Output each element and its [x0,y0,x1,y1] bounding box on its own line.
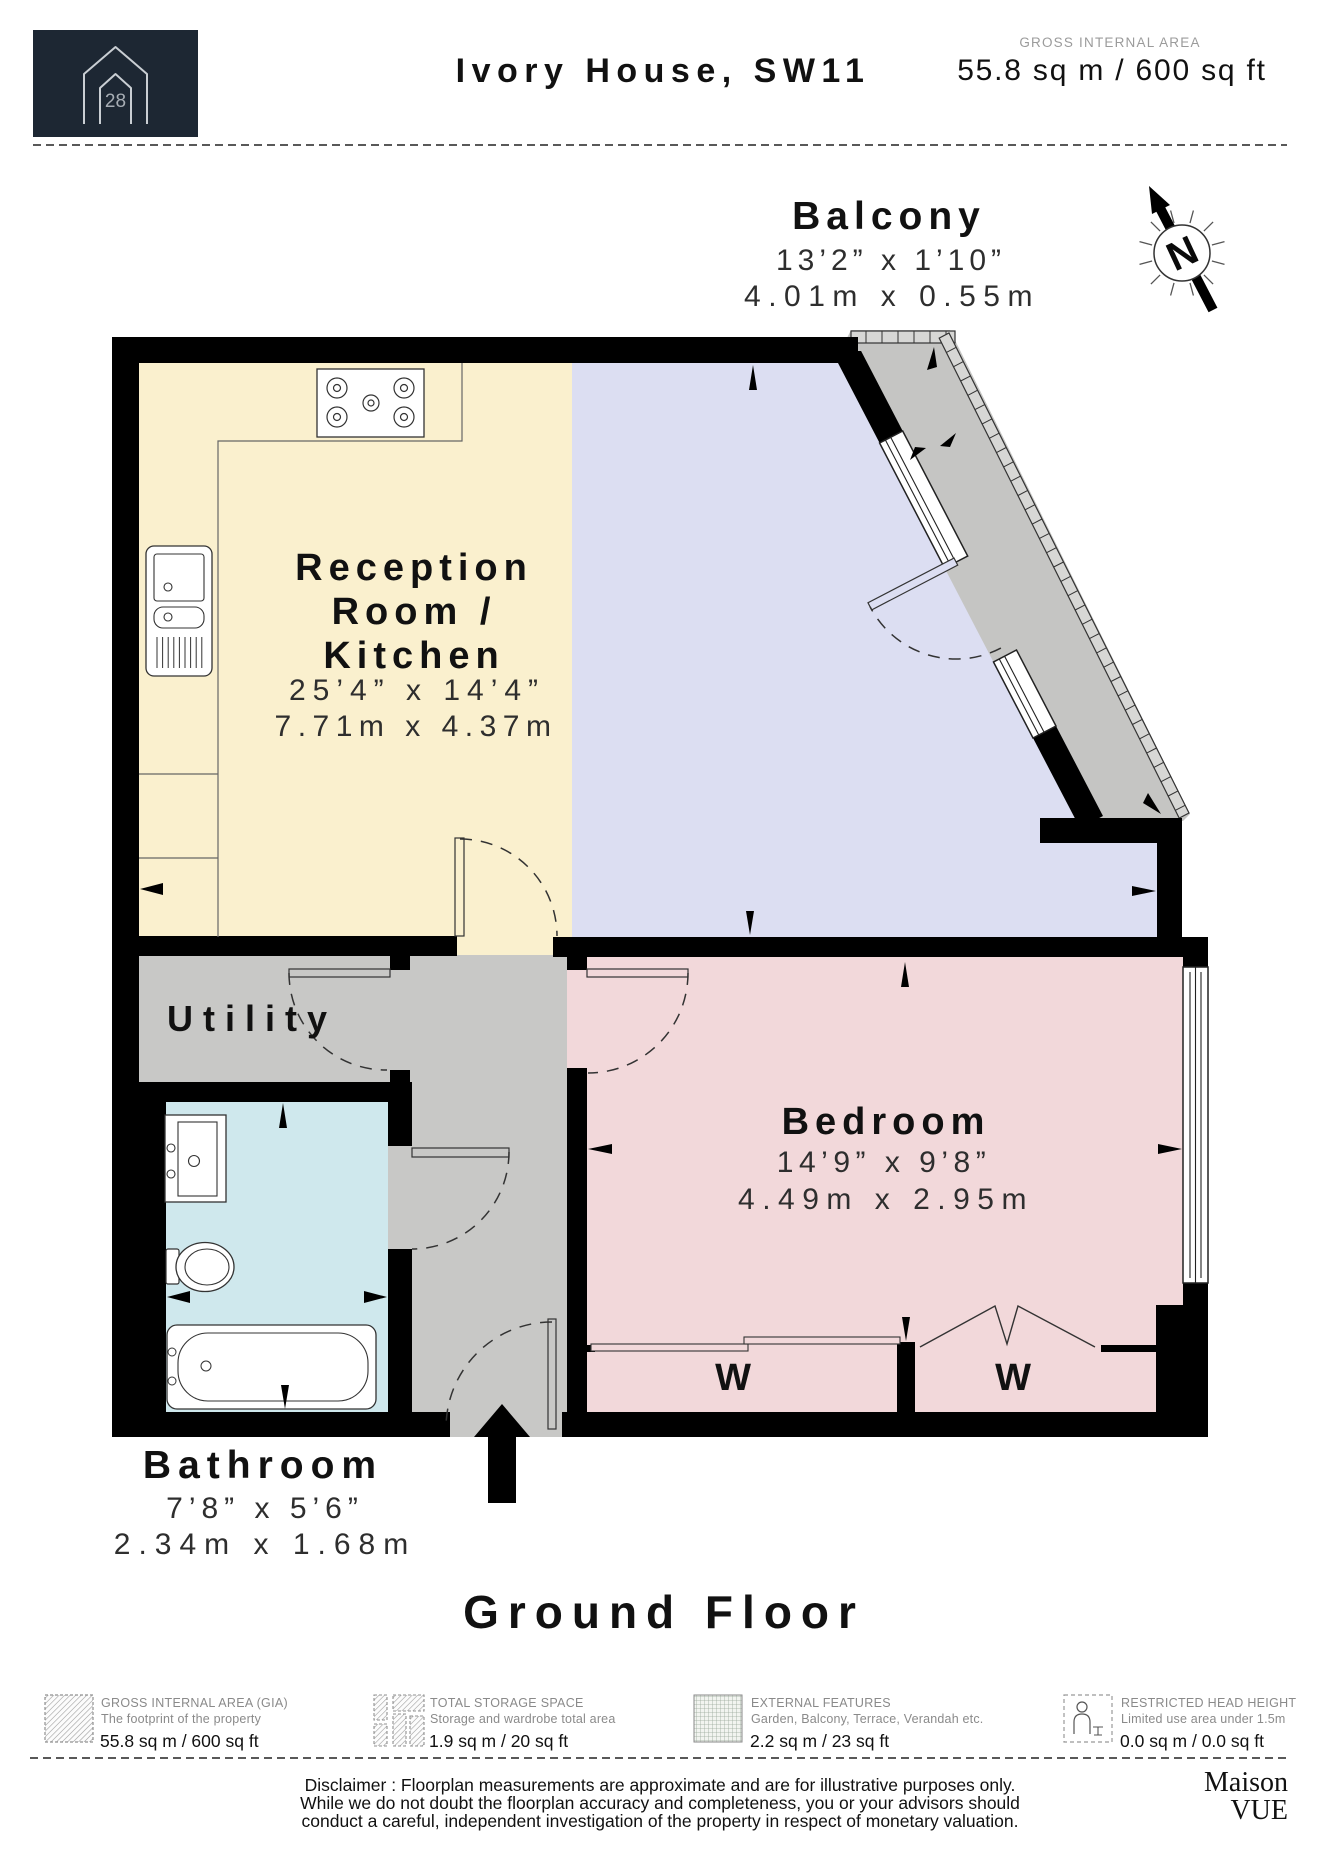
svg-text:Kitchen: Kitchen [323,635,504,677]
svg-text:Maison: Maison [1204,1767,1288,1798]
svg-text:The footprint of the property: The footprint of the property [101,1712,262,1726]
svg-text:conduct a careful, independent: conduct a careful, independent investiga… [302,1811,1019,1831]
svg-text:EXTERNAL FEATURES: EXTERNAL FEATURES [751,1696,891,1710]
svg-text:Storage and wardrobe total are: Storage and wardrobe total area [430,1712,616,1726]
svg-text:Ivory House, SW11: Ivory House, SW11 [456,52,871,90]
svg-text:Bedroom: Bedroom [782,1101,991,1143]
svg-text:W: W [995,1357,1031,1399]
svg-text:7.71m x 4.37m: 7.71m x 4.37m [275,710,558,743]
svg-text:While we do not doubt the floo: While we do not doubt the floorplan accu… [300,1793,1020,1813]
svg-text:GROSS INTERNAL AREA: GROSS INTERNAL AREA [1019,35,1200,50]
svg-text:14’9” x 9’8”: 14’9” x 9’8” [777,1146,991,1179]
svg-text:Disclaimer : Floorplan measure: Disclaimer : Floorplan measurements are … [305,1775,1016,1795]
svg-text:55.8 sq m / 600 sq ft: 55.8 sq m / 600 sq ft [957,54,1267,87]
svg-text:Garden, Balcony, Terrace, Vera: Garden, Balcony, Terrace, Verandah etc. [751,1712,983,1726]
svg-text:GROSS INTERNAL AREA (GIA): GROSS INTERNAL AREA (GIA) [101,1696,288,1710]
svg-text:55.8 sq m / 600 sq ft: 55.8 sq m / 600 sq ft [100,1731,259,1751]
svg-text:0.0 sq m / 0.0 sq ft: 0.0 sq m / 0.0 sq ft [1120,1731,1264,1751]
svg-text:4.49m x 2.95m: 4.49m x 2.95m [738,1183,1034,1216]
svg-text:7’8” x 5’6”: 7’8” x 5’6” [166,1492,364,1525]
svg-text:4.01m x 0.55m: 4.01m x 0.55m [744,280,1040,313]
svg-text:VUE: VUE [1230,1795,1288,1826]
svg-text:2.2 sq m / 23 sq ft: 2.2 sq m / 23 sq ft [750,1731,889,1751]
svg-text:2.34m x 1.68m: 2.34m x 1.68m [114,1528,416,1561]
svg-text:Utility: Utility [167,998,337,1039]
svg-text:Room /: Room / [332,591,497,633]
svg-text:Balcony: Balcony [792,195,986,238]
svg-text:Bathroom: Bathroom [143,1444,383,1487]
svg-text:1.9 sq m / 20 sq ft: 1.9 sq m / 20 sq ft [429,1731,568,1751]
svg-text:TOTAL STORAGE SPACE: TOTAL STORAGE SPACE [430,1696,584,1710]
svg-text:RESTRICTED HEAD HEIGHT: RESTRICTED HEAD HEIGHT [1121,1696,1296,1710]
svg-text:Limited use area under 1.5m: Limited use area under 1.5m [1121,1712,1286,1726]
svg-text:Ground Floor: Ground Floor [463,1586,865,1638]
svg-text:28: 28 [105,91,126,112]
svg-text:25’4” x 14’4”: 25’4” x 14’4” [289,674,545,707]
svg-text:13’2” x 1’10”: 13’2” x 1’10” [776,244,1006,277]
svg-text:W: W [715,1357,751,1399]
svg-text:Reception: Reception [295,547,533,589]
